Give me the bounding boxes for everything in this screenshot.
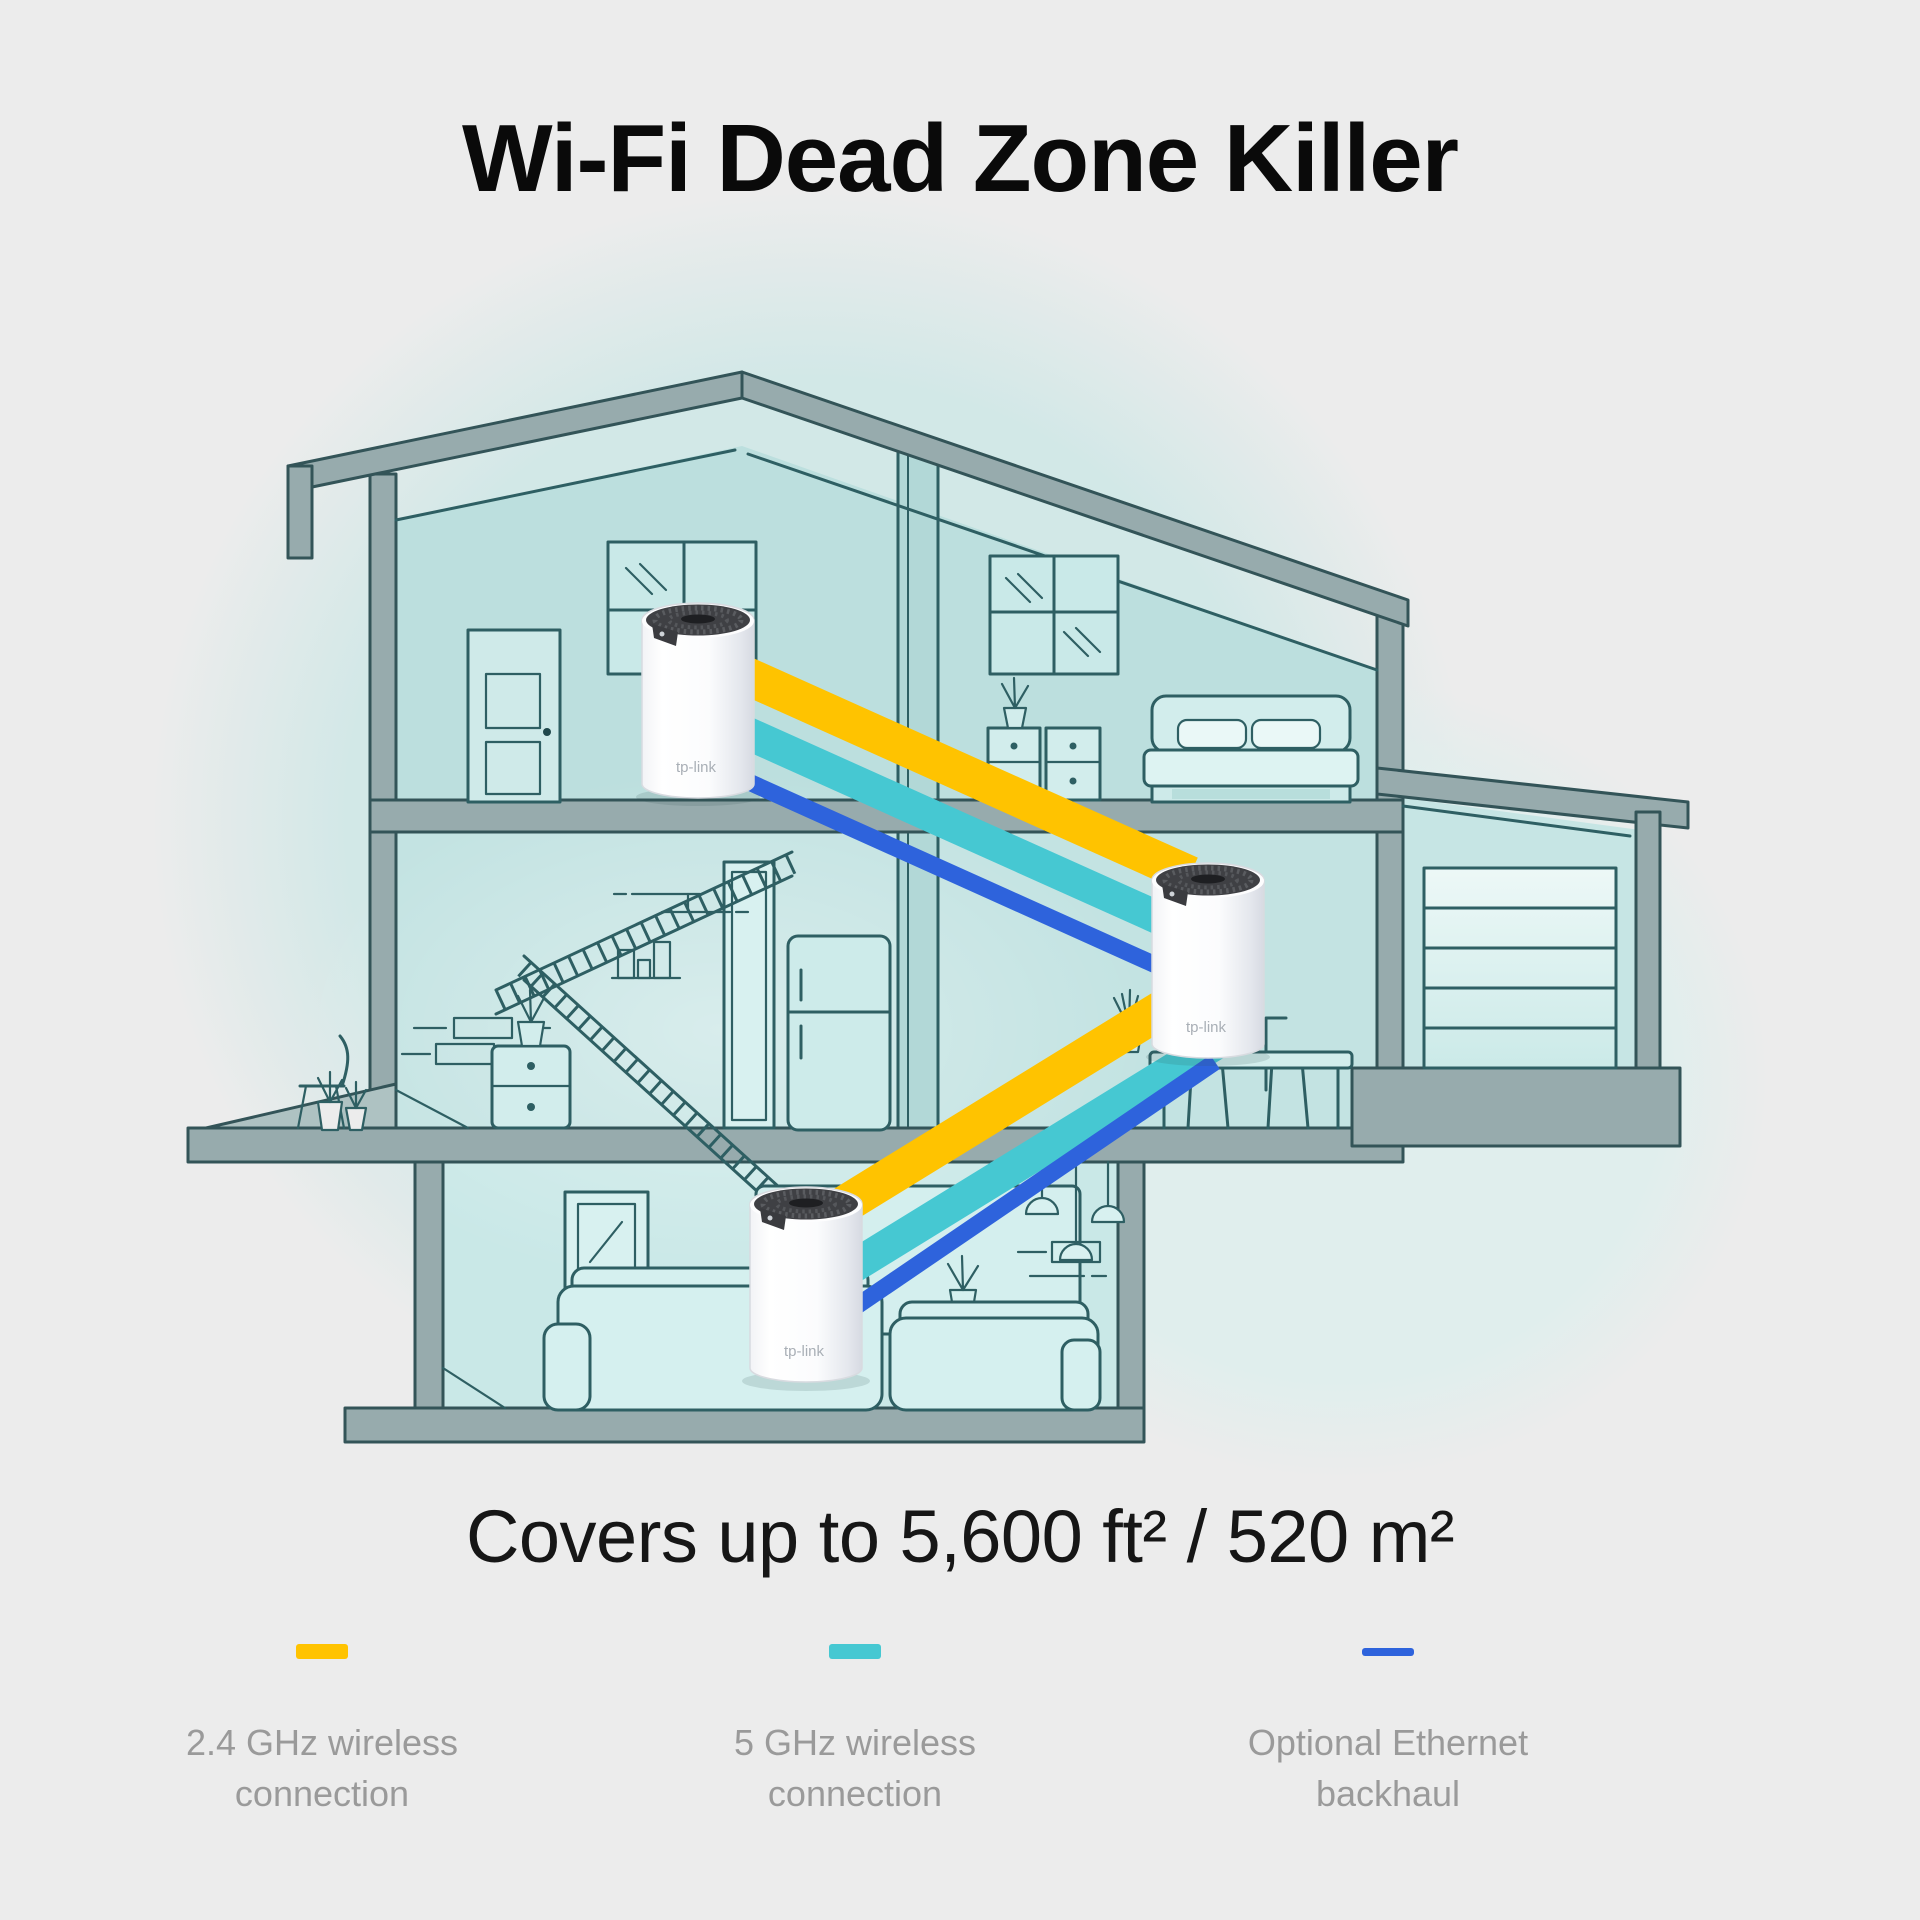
deco-unit-attic: tp-link bbox=[636, 603, 760, 806]
house-cutaway-illustration: tp-link tp-link tp-link bbox=[0, 0, 1920, 1920]
deco-unit-dining: tp-link bbox=[1146, 863, 1270, 1066]
legend-item-24ghz: 2.4 GHz wireless connection bbox=[102, 1644, 542, 1819]
left-eave-post bbox=[288, 466, 312, 558]
attic-door bbox=[468, 630, 560, 802]
legend-label-5ghz: 5 GHz wireless connection bbox=[734, 1717, 976, 1819]
couch-right bbox=[890, 1302, 1100, 1410]
tp-link-logo: tp-link bbox=[676, 759, 717, 776]
fridge bbox=[788, 936, 890, 1130]
legend-swatch-5ghz bbox=[829, 1644, 881, 1659]
legend-label-line: connection bbox=[186, 1768, 458, 1819]
bed bbox=[1144, 696, 1358, 802]
garage-right-wall bbox=[1636, 812, 1660, 1068]
legend-label-line: Optional Ethernet bbox=[1248, 1717, 1528, 1768]
legend-label-ethernet: Optional Ethernet backhaul bbox=[1248, 1717, 1528, 1819]
hall-dresser bbox=[492, 1046, 570, 1128]
legend-label-24ghz: 2.4 GHz wireless connection bbox=[186, 1717, 458, 1819]
basement-left-wall bbox=[415, 1160, 443, 1410]
hallway-door bbox=[724, 862, 774, 1128]
legend-item-5ghz: 5 GHz wireless connection bbox=[635, 1644, 1075, 1819]
right-wall bbox=[1377, 600, 1403, 1130]
bedroom-window bbox=[990, 556, 1118, 674]
garage-floor-slab bbox=[1352, 1068, 1680, 1146]
legend-label-line: backhaul bbox=[1248, 1768, 1528, 1819]
basement-floor-slab bbox=[345, 1408, 1144, 1442]
infographic-canvas: tp-link tp-link tp-link bbox=[0, 0, 1920, 1920]
legend-label-line: 2.4 GHz wireless bbox=[186, 1717, 458, 1768]
legend-item-ethernet: Optional Ethernet backhaul bbox=[1168, 1644, 1608, 1819]
legend-label-line: connection bbox=[734, 1768, 976, 1819]
legend-swatch-ethernet bbox=[1362, 1648, 1414, 1656]
tp-link-logo: tp-link bbox=[1186, 1019, 1227, 1036]
first-floor-slab bbox=[188, 1128, 1403, 1162]
basement-right-wall bbox=[1118, 1160, 1144, 1410]
coverage-caption: Covers up to 5,600 ft² / 520 m² bbox=[0, 1494, 1920, 1579]
garage-door bbox=[1424, 868, 1616, 1068]
legend-swatch-24ghz bbox=[296, 1644, 348, 1659]
page-title: Wi-Fi Dead Zone Killer bbox=[0, 104, 1920, 214]
deco-unit-living: tp-link bbox=[742, 1187, 870, 1391]
legend-label-line: 5 GHz wireless bbox=[734, 1717, 976, 1768]
tp-link-logo: tp-link bbox=[784, 1343, 825, 1360]
